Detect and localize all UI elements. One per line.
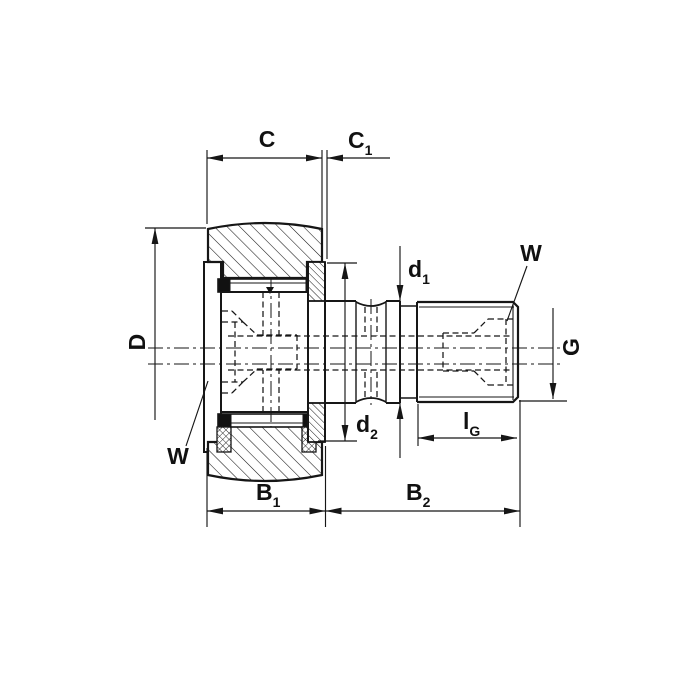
dim-label-c1: C1 — [348, 127, 373, 158]
dim-label-b1: B1 — [256, 479, 281, 510]
svg-text:D: D — [124, 334, 150, 351]
label-w-left: W — [167, 443, 189, 469]
stud-flange — [308, 262, 325, 442]
dim-label-d: D — [124, 334, 150, 351]
hex-socket-right — [443, 319, 513, 385]
dim-label-g: G — [558, 338, 584, 356]
dim-label-lg: lG — [463, 408, 480, 439]
seal-element-left — [217, 427, 231, 452]
seal-block-bottom-left — [218, 414, 231, 427]
dim-label-b2: B2 — [406, 479, 431, 510]
dimension-labels: C C1 D W W d1 d2 B1 B2 G lG — [124, 126, 584, 510]
part-geometry — [204, 223, 518, 481]
dim-label-d1: d1 — [408, 256, 430, 287]
hex-socket-left — [222, 311, 297, 393]
label-w-right: W — [520, 240, 542, 266]
cam-follower-section-drawing: C C1 D W W d1 d2 B1 B2 G lG — [0, 0, 700, 700]
technical-drawing-page: C C1 D W W d1 d2 B1 B2 G lG — [0, 0, 700, 700]
seal-block-top-left — [218, 279, 230, 292]
hidden-features — [222, 292, 513, 412]
dim-label-d2: d2 — [356, 411, 378, 442]
needle-rollers-bottom — [218, 414, 318, 427]
svg-text:G: G — [558, 338, 584, 356]
dim-label-c: C — [259, 126, 276, 152]
outer-ring-top-section — [208, 223, 322, 278]
threaded-end — [417, 302, 518, 402]
